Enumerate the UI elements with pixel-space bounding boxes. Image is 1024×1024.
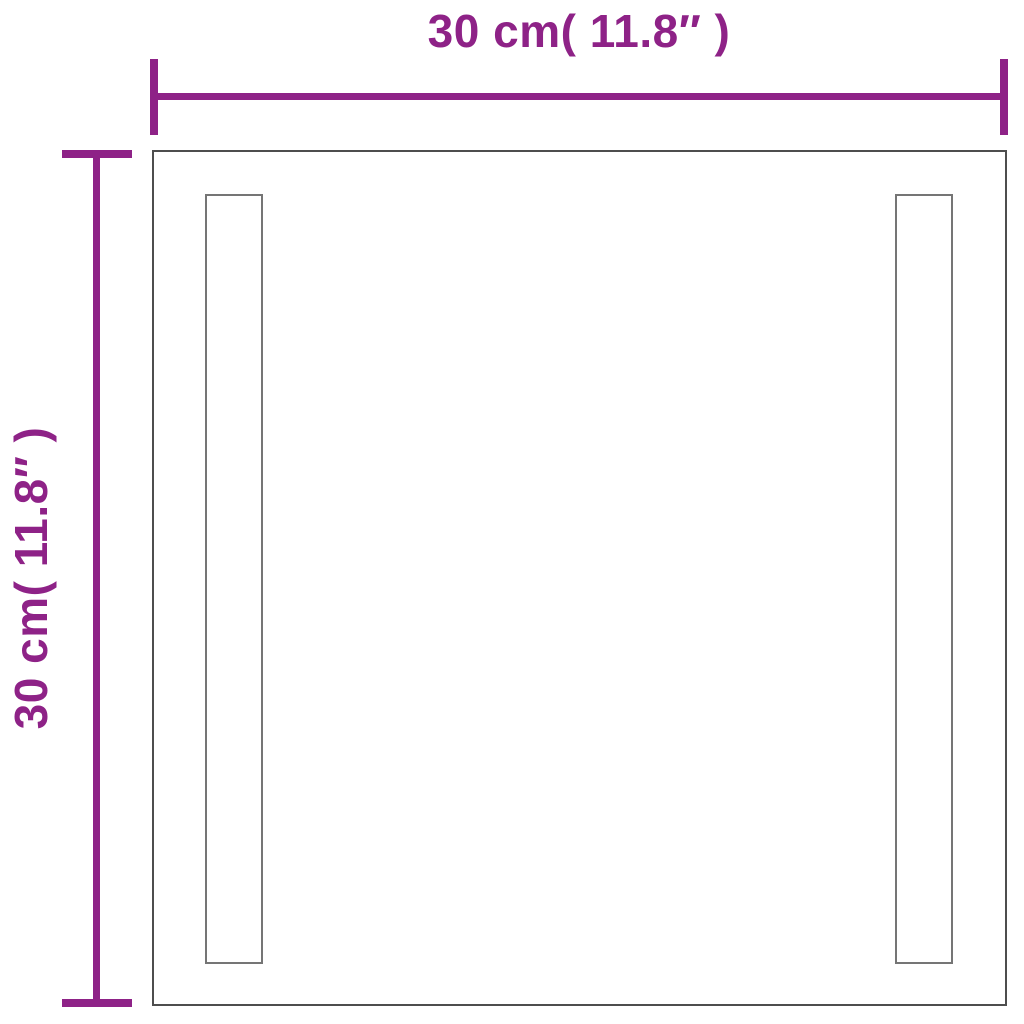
vertical-dimension-label: 30 cm( 11.8″ ) — [4, 427, 58, 730]
horizontal-dimension-left-tick — [150, 59, 158, 135]
horizontal-dimension-label: 30 cm( 11.8″ ) — [428, 4, 731, 58]
mirror-outline — [152, 150, 1007, 1006]
horizontal-dimension-right-tick — [1000, 59, 1008, 135]
dimension-diagram: 30 cm( 11.8″ ) 30 cm( 11.8″ ) — [0, 0, 1024, 1024]
vertical-dimension-line — [93, 150, 100, 1007]
horizontal-dimension-line — [150, 93, 1008, 100]
vertical-dimension-top-tick — [62, 150, 132, 158]
led-strip-right — [895, 194, 953, 964]
vertical-dimension-bottom-tick — [62, 999, 132, 1007]
led-strip-left — [205, 194, 263, 964]
